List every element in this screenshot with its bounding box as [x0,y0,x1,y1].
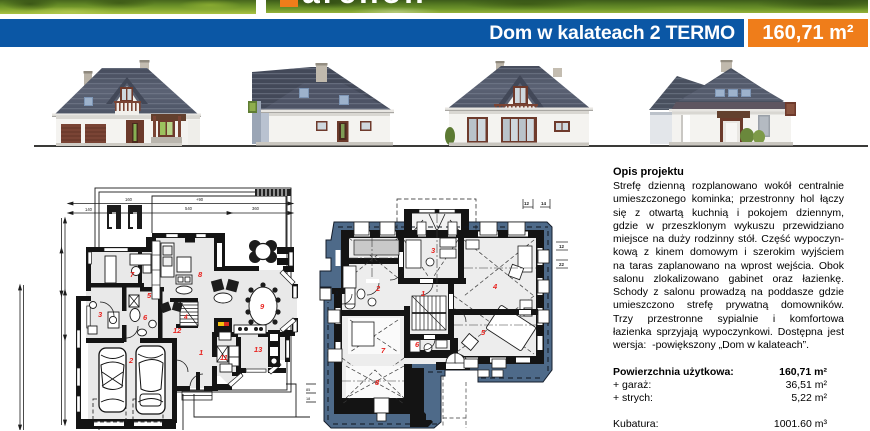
svg-text:18: 18 [306,397,310,401]
svg-text:2: 2 [128,356,134,365]
svg-text:4: 4 [492,282,498,291]
svg-text:360: 360 [252,206,260,211]
svg-text:12: 12 [559,244,565,249]
svg-text:1: 1 [199,348,203,357]
svg-text:160: 160 [125,197,133,202]
svg-text:14: 14 [541,201,547,206]
svg-text:85: 85 [306,388,310,392]
svg-text:12: 12 [173,326,182,335]
svg-text:540: 540 [185,206,193,211]
svg-text:4: 4 [183,314,188,321]
svg-text:11: 11 [220,353,228,362]
svg-text:13: 13 [254,345,263,354]
svg-text:2: 2 [375,284,381,293]
svg-text:12: 12 [524,201,530,206]
svg-text:+90: +90 [196,197,204,202]
svg-text:140: 140 [85,207,93,212]
svg-text:1: 1 [421,289,425,298]
svg-text:22: 22 [559,262,565,267]
